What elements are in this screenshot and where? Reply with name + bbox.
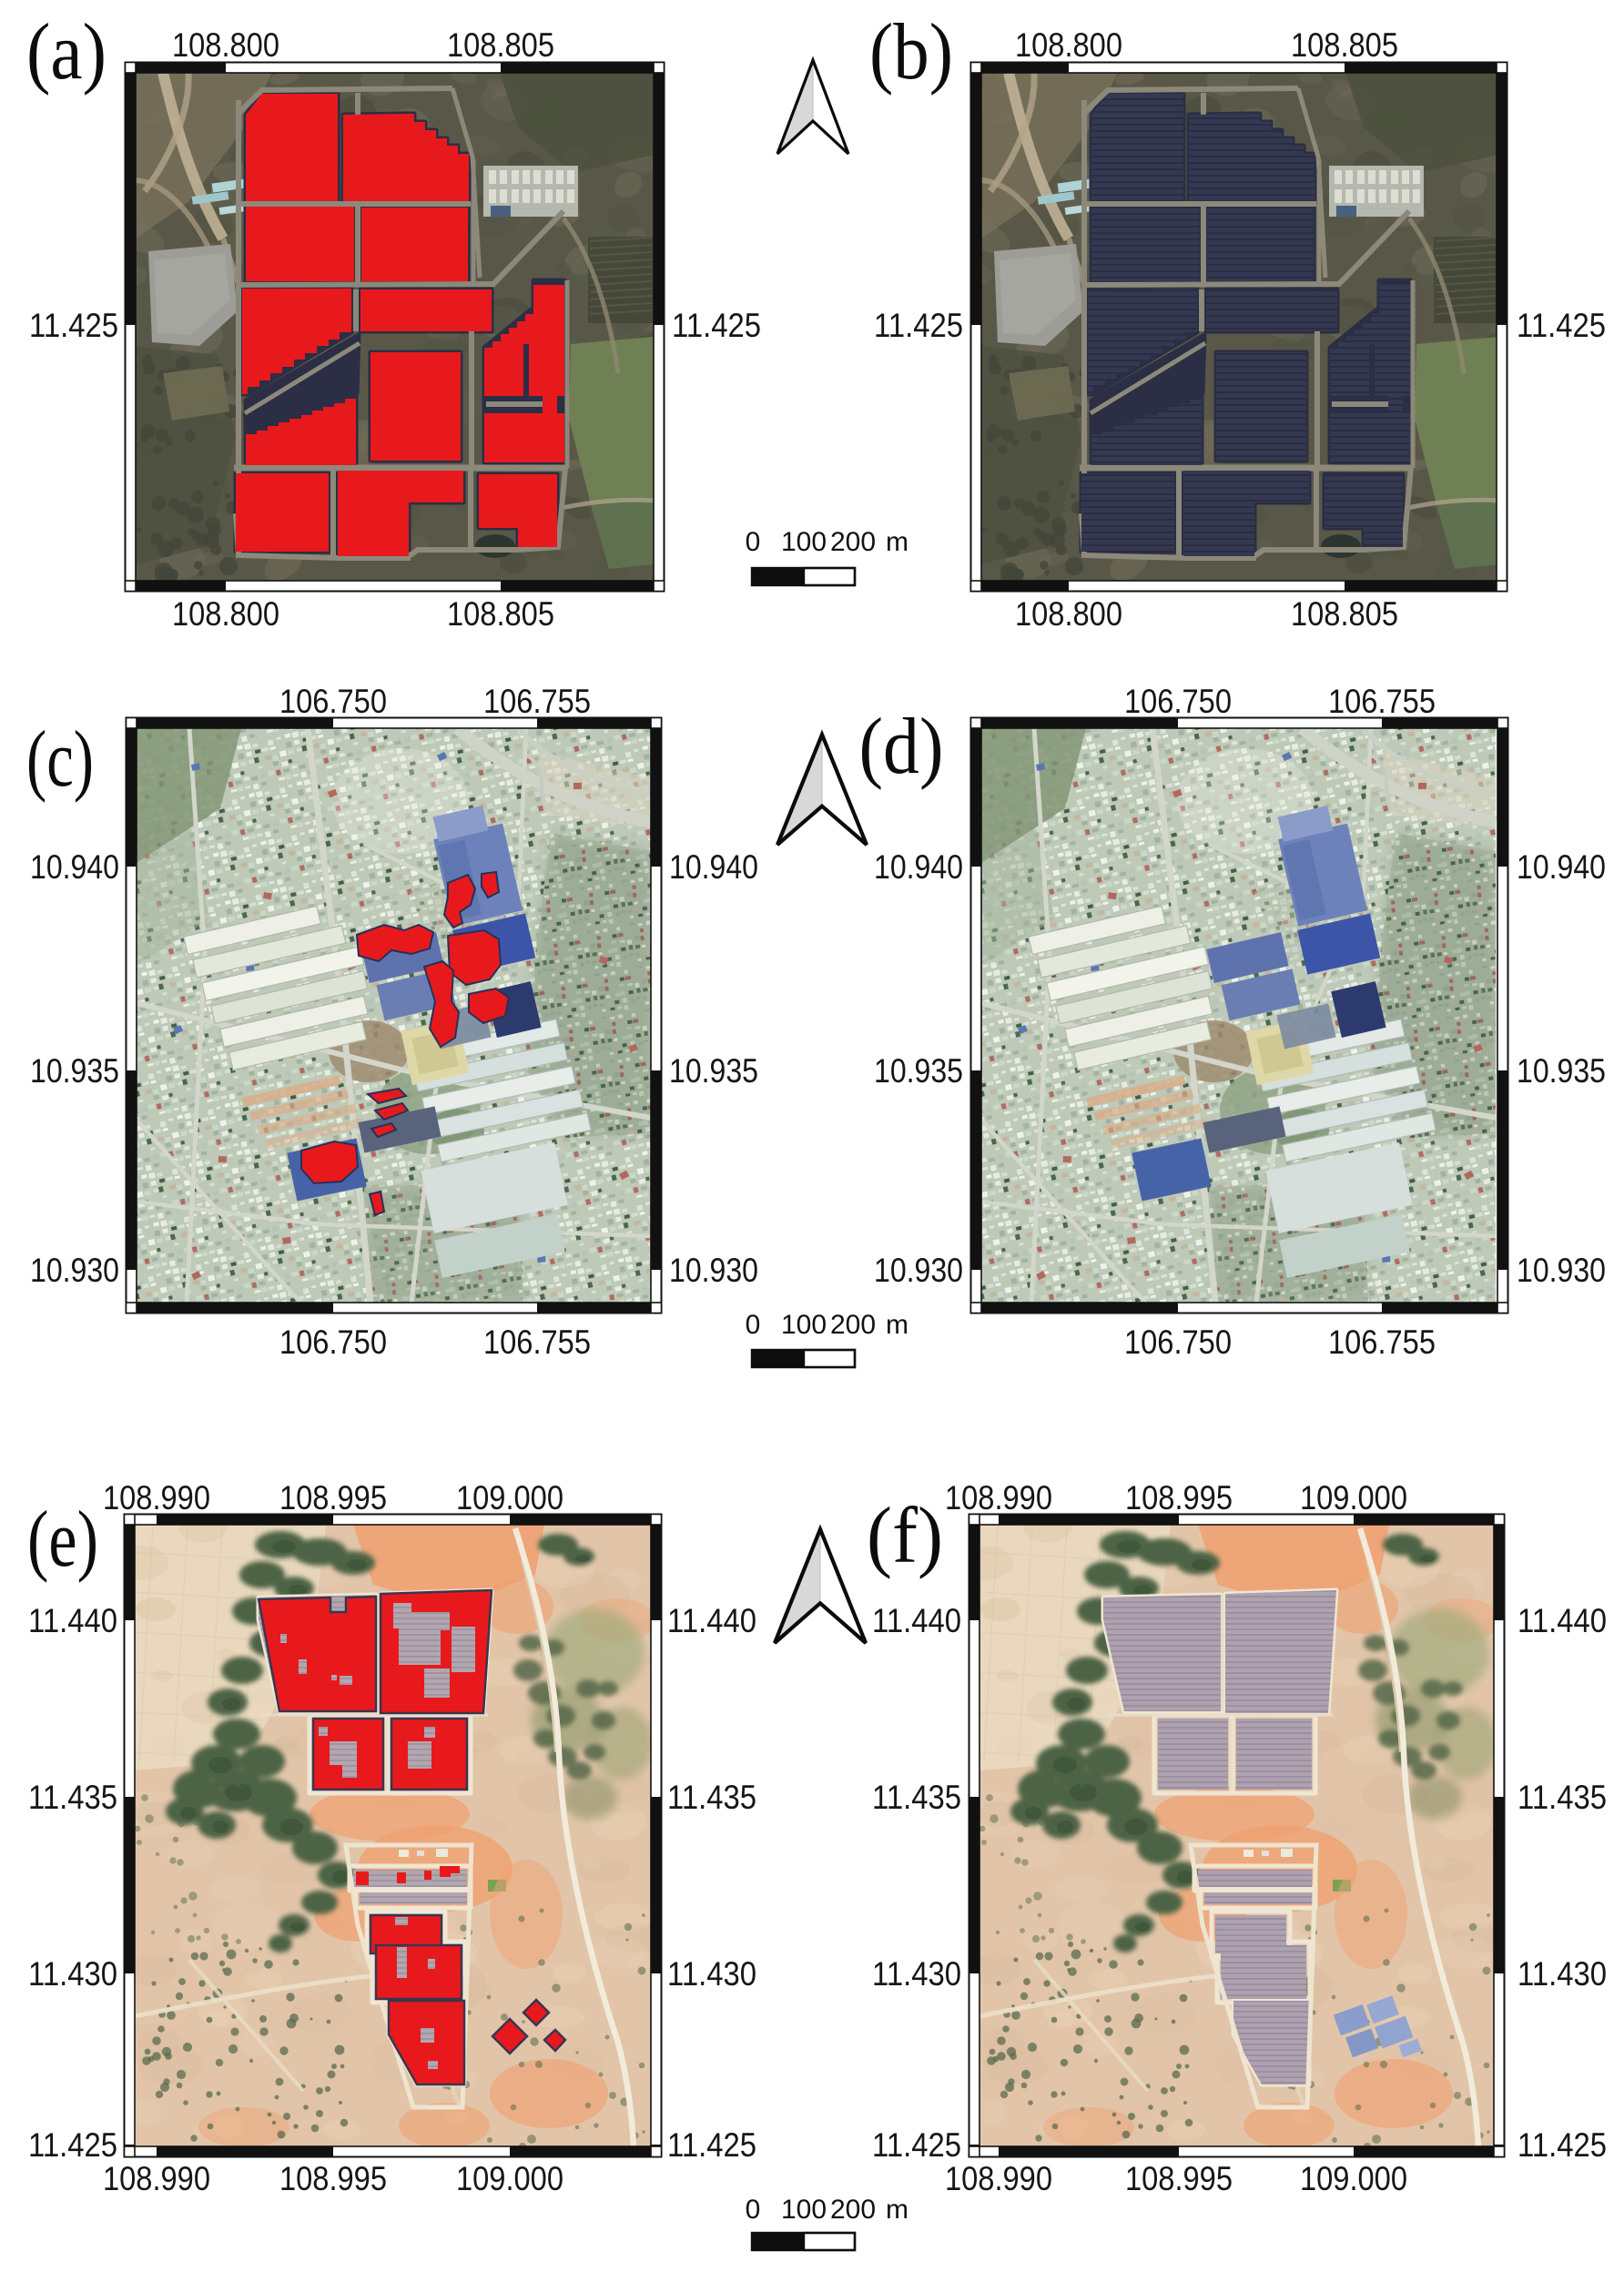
svg-text:11.430: 11.430 xyxy=(1517,1955,1607,1993)
svg-text:0: 0 xyxy=(746,1310,761,1340)
svg-text:(c): (c) xyxy=(26,715,94,804)
svg-text:108.990: 108.990 xyxy=(103,1479,210,1516)
svg-text:10.930: 10.930 xyxy=(874,1252,963,1289)
svg-text:108.990: 108.990 xyxy=(945,1479,1052,1516)
svg-text:10.940: 10.940 xyxy=(30,848,119,886)
svg-text:200: 200 xyxy=(830,527,876,557)
svg-text:108.800: 108.800 xyxy=(172,26,279,64)
svg-text:(e): (e) xyxy=(27,1496,98,1584)
svg-text:106.750: 106.750 xyxy=(279,1324,387,1361)
svg-text:0: 0 xyxy=(746,2195,761,2225)
svg-text:10.935: 10.935 xyxy=(1517,1052,1606,1090)
svg-text:106.755: 106.755 xyxy=(1328,1324,1436,1361)
svg-text:m: m xyxy=(886,2195,908,2225)
svg-text:11.425: 11.425 xyxy=(672,307,761,344)
svg-text:11.425: 11.425 xyxy=(1517,2126,1607,2164)
svg-text:11.430: 11.430 xyxy=(28,1955,117,1993)
svg-text:106.750: 106.750 xyxy=(1124,683,1232,720)
svg-text:10.935: 10.935 xyxy=(30,1052,119,1090)
svg-text:108.995: 108.995 xyxy=(279,2160,387,2197)
svg-text:108.995: 108.995 xyxy=(1125,1479,1233,1516)
svg-text:106.750: 106.750 xyxy=(1124,1324,1232,1361)
svg-text:(b): (b) xyxy=(869,8,953,96)
svg-text:100: 100 xyxy=(781,527,827,557)
svg-text:108.990: 108.990 xyxy=(945,2160,1052,2197)
svg-text:11.440: 11.440 xyxy=(1517,1602,1607,1639)
svg-text:10.940: 10.940 xyxy=(874,848,963,886)
svg-text:106.755: 106.755 xyxy=(1328,683,1436,720)
svg-text:10.930: 10.930 xyxy=(1517,1252,1606,1289)
svg-text:(a): (a) xyxy=(26,8,107,96)
svg-text:11.425: 11.425 xyxy=(1517,307,1606,344)
svg-text:11.430: 11.430 xyxy=(872,1955,961,1993)
svg-text:11.425: 11.425 xyxy=(667,2126,756,2164)
svg-text:11.425: 11.425 xyxy=(874,307,963,344)
svg-text:108.805: 108.805 xyxy=(1291,26,1398,64)
svg-text:11.435: 11.435 xyxy=(667,1779,756,1816)
svg-text:10.935: 10.935 xyxy=(874,1052,963,1090)
svg-text:11.425: 11.425 xyxy=(872,2126,961,2164)
svg-text:100: 100 xyxy=(781,1310,827,1340)
svg-text:108.990: 108.990 xyxy=(103,2160,210,2197)
svg-text:108.800: 108.800 xyxy=(172,595,279,633)
svg-text:10.940: 10.940 xyxy=(1517,848,1606,886)
svg-text:108.805: 108.805 xyxy=(447,26,554,64)
svg-text:11.440: 11.440 xyxy=(872,1602,961,1639)
svg-text:109.000: 109.000 xyxy=(456,2160,563,2197)
svg-text:10.930: 10.930 xyxy=(30,1252,119,1289)
svg-text:109.000: 109.000 xyxy=(1300,1479,1407,1516)
svg-text:11.440: 11.440 xyxy=(28,1602,117,1639)
svg-text:108.995: 108.995 xyxy=(1125,2160,1233,2197)
svg-text:108.805: 108.805 xyxy=(447,595,554,633)
svg-text:0: 0 xyxy=(746,527,761,557)
svg-text:200: 200 xyxy=(830,2195,876,2225)
svg-text:109.000: 109.000 xyxy=(456,1479,563,1516)
svg-text:11.435: 11.435 xyxy=(872,1779,961,1816)
svg-text:108.800: 108.800 xyxy=(1015,26,1122,64)
svg-text:10.940: 10.940 xyxy=(669,848,758,886)
svg-text:11.425: 11.425 xyxy=(28,2126,117,2164)
svg-text:106.750: 106.750 xyxy=(279,683,387,720)
svg-text:m: m xyxy=(886,1310,908,1340)
svg-text:11.430: 11.430 xyxy=(667,1955,756,1993)
svg-text:m: m xyxy=(886,527,908,557)
svg-text:11.435: 11.435 xyxy=(28,1779,117,1816)
svg-text:(d): (d) xyxy=(859,703,944,791)
svg-text:100: 100 xyxy=(781,2195,827,2225)
svg-text:(f): (f) xyxy=(867,1492,943,1580)
svg-text:109.000: 109.000 xyxy=(1300,2160,1407,2197)
svg-text:11.425: 11.425 xyxy=(29,307,118,344)
svg-text:108.805: 108.805 xyxy=(1291,595,1398,633)
svg-text:108.995: 108.995 xyxy=(279,1479,387,1516)
svg-text:200: 200 xyxy=(830,1310,876,1340)
svg-text:11.435: 11.435 xyxy=(1517,1779,1607,1816)
svg-text:106.755: 106.755 xyxy=(483,683,591,720)
svg-text:106.755: 106.755 xyxy=(483,1324,591,1361)
svg-text:10.930: 10.930 xyxy=(669,1252,758,1289)
svg-text:10.935: 10.935 xyxy=(669,1052,758,1090)
svg-text:108.800: 108.800 xyxy=(1015,595,1122,633)
svg-text:11.440: 11.440 xyxy=(667,1602,756,1639)
